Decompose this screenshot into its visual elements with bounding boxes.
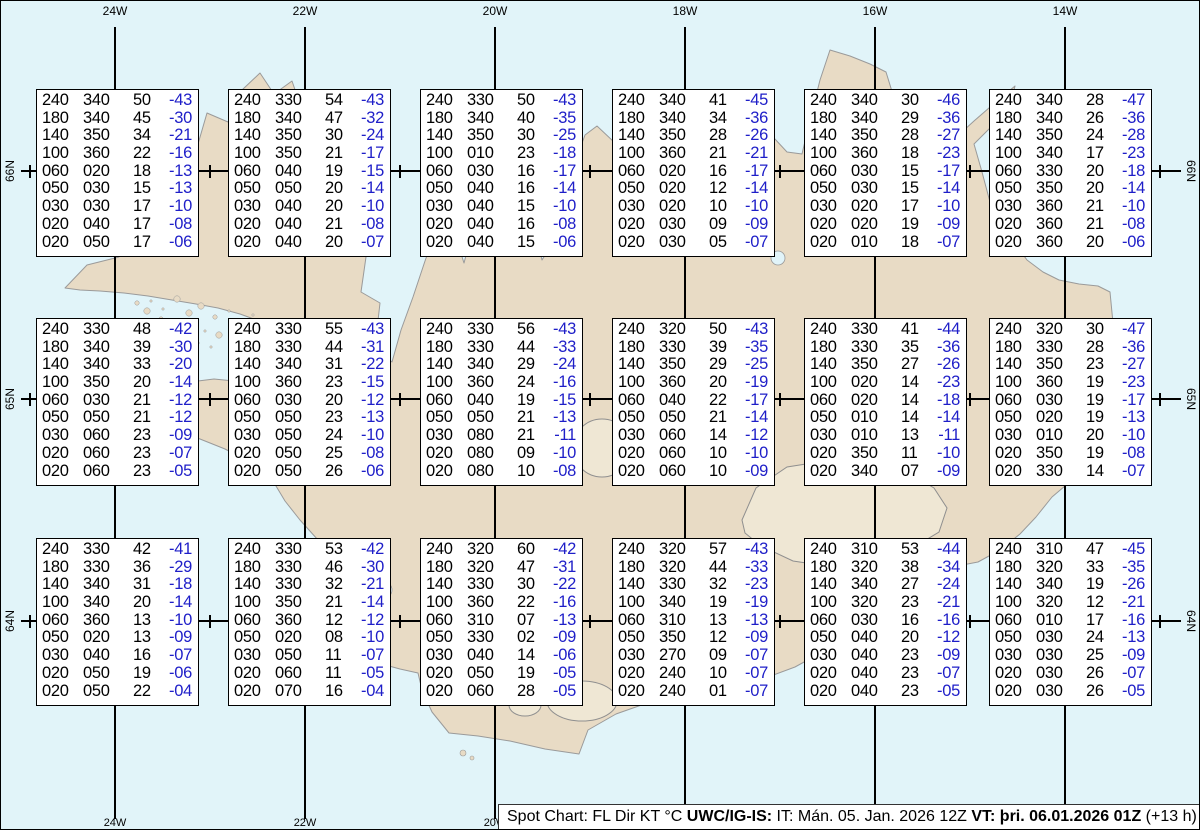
meridian-label-top: 18W bbox=[673, 4, 698, 18]
temp-value: -10 bbox=[1122, 427, 1147, 445]
kt-value: 23 bbox=[133, 463, 169, 481]
temp-value: -13 bbox=[169, 163, 194, 181]
forecast-row: 24033050-43 bbox=[426, 92, 578, 110]
kt-value: 02 bbox=[517, 629, 553, 647]
fl-value: 030 bbox=[42, 198, 83, 216]
fl-value: 020 bbox=[618, 234, 659, 252]
temp-value: -10 bbox=[745, 198, 770, 216]
fl-value: 030 bbox=[426, 427, 467, 445]
fl-value: 020 bbox=[618, 463, 659, 481]
graticule-cross bbox=[1159, 615, 1161, 628]
dir-value: 330 bbox=[659, 576, 709, 594]
dir-value: 360 bbox=[1036, 374, 1086, 392]
forecast-row: 02004023-07 bbox=[810, 665, 962, 683]
meridian-label-bottom: 22W bbox=[294, 817, 317, 829]
fl-value: 020 bbox=[234, 445, 275, 463]
forecast-row: 05033002-09 bbox=[426, 629, 578, 647]
forecast-row: 06002016-17 bbox=[618, 163, 770, 181]
temp-value: -08 bbox=[1122, 216, 1147, 234]
dir-value: 010 bbox=[1036, 427, 1086, 445]
forecast-row: 06004019-15 bbox=[234, 163, 386, 181]
kt-value: 47 bbox=[517, 559, 553, 577]
temp-value: -19 bbox=[745, 594, 770, 612]
kt-value: 21 bbox=[709, 145, 745, 163]
forecast-row: 10036023-15 bbox=[234, 374, 386, 392]
temp-value: -34 bbox=[937, 559, 962, 577]
temp-value: -17 bbox=[745, 392, 770, 410]
temp-value: -08 bbox=[169, 216, 194, 234]
dir-value: 030 bbox=[83, 392, 133, 410]
kt-value: 16 bbox=[325, 683, 361, 701]
fl-value: 240 bbox=[995, 92, 1036, 110]
forecast-row: 14035030-24 bbox=[234, 127, 386, 145]
temp-value: -06 bbox=[169, 234, 194, 252]
kt-value: 22 bbox=[133, 145, 169, 163]
forecast-row: 06036012-12 bbox=[234, 612, 386, 630]
kt-value: 24 bbox=[325, 427, 361, 445]
kt-value: 25 bbox=[325, 445, 361, 463]
forecast-row: 02024010-07 bbox=[618, 665, 770, 683]
dir-value: 030 bbox=[1036, 683, 1086, 701]
forecast-row: 18034026-36 bbox=[995, 110, 1147, 128]
islet bbox=[162, 308, 164, 310]
temp-value: -31 bbox=[361, 339, 386, 357]
fl-value: 020 bbox=[810, 683, 851, 701]
forecast-row: 06004019-15 bbox=[426, 392, 578, 410]
kt-value: 55 bbox=[325, 321, 361, 339]
kt-value: 01 bbox=[709, 683, 745, 701]
temp-value: -06 bbox=[361, 463, 386, 481]
kt-value: 18 bbox=[901, 145, 937, 163]
dir-value: 360 bbox=[1036, 198, 1086, 216]
fl-value: 180 bbox=[42, 339, 83, 357]
forecast-row: 18033046-30 bbox=[234, 559, 386, 577]
forecast-row: 10001023-18 bbox=[426, 145, 578, 163]
fl-value: 180 bbox=[426, 559, 467, 577]
forecast-row: 05005021-12 bbox=[42, 409, 194, 427]
info-bar-bold-segment: UWC/IG-IS: bbox=[687, 808, 772, 825]
spot-forecast-box: 24033054-4318034047-3214035030-241003502… bbox=[228, 89, 391, 257]
dir-value: 350 bbox=[659, 356, 709, 374]
dir-value: 350 bbox=[1036, 356, 1086, 374]
kt-value: 34 bbox=[709, 110, 745, 128]
kt-value: 22 bbox=[517, 594, 553, 612]
forecast-row: 03002010-10 bbox=[618, 198, 770, 216]
fl-value: 100 bbox=[995, 594, 1036, 612]
fl-value: 100 bbox=[234, 145, 275, 163]
forecast-row: 05004016-14 bbox=[426, 180, 578, 198]
fl-value: 180 bbox=[42, 110, 83, 128]
kt-value: 18 bbox=[901, 234, 937, 252]
kt-value: 23 bbox=[901, 647, 937, 665]
dir-value: 010 bbox=[851, 234, 901, 252]
islet bbox=[228, 310, 230, 312]
forecast-row: 02005017-06 bbox=[42, 234, 194, 252]
islet bbox=[174, 296, 180, 302]
info-bar-segment: Spot Chart: FL Dir KT °C bbox=[507, 808, 687, 825]
fl-value: 240 bbox=[995, 541, 1036, 559]
dir-value: 310 bbox=[851, 541, 901, 559]
fl-value: 240 bbox=[426, 92, 467, 110]
graticule-cross bbox=[399, 393, 401, 406]
temp-value: -08 bbox=[553, 463, 578, 481]
kt-value: 12 bbox=[709, 180, 745, 198]
fl-value: 140 bbox=[426, 576, 467, 594]
temp-value: -36 bbox=[937, 110, 962, 128]
dir-value: 340 bbox=[851, 576, 901, 594]
temp-value: -33 bbox=[553, 339, 578, 357]
graticule-cross bbox=[589, 615, 591, 628]
dir-value: 020 bbox=[1036, 409, 1086, 427]
temp-value: -10 bbox=[361, 198, 386, 216]
dir-value: 070 bbox=[275, 683, 325, 701]
temp-value: -36 bbox=[1122, 339, 1147, 357]
kt-value: 27 bbox=[901, 356, 937, 374]
forecast-row: 02008009-10 bbox=[426, 445, 578, 463]
graticule-cross bbox=[779, 165, 781, 178]
fl-value: 100 bbox=[426, 145, 467, 163]
dir-value: 320 bbox=[1036, 321, 1086, 339]
forecast-row: 05003015-14 bbox=[810, 180, 962, 198]
dir-value: 040 bbox=[851, 665, 901, 683]
dir-value: 020 bbox=[83, 629, 133, 647]
temp-value: -10 bbox=[553, 445, 578, 463]
forecast-row: 24033055-43 bbox=[234, 321, 386, 339]
forecast-row: 03006023-09 bbox=[42, 427, 194, 445]
kt-value: 10 bbox=[709, 445, 745, 463]
fl-value: 180 bbox=[426, 110, 467, 128]
fl-value: 060 bbox=[995, 392, 1036, 410]
dir-value: 040 bbox=[851, 683, 901, 701]
dir-value: 030 bbox=[659, 216, 709, 234]
dir-value: 020 bbox=[659, 180, 709, 198]
forecast-row: 24034041-45 bbox=[618, 92, 770, 110]
fl-value: 180 bbox=[810, 559, 851, 577]
fl-value: 140 bbox=[618, 576, 659, 594]
kt-value: 20 bbox=[1086, 427, 1122, 445]
temp-value: -07 bbox=[169, 445, 194, 463]
forecast-row: 24034028-47 bbox=[995, 92, 1147, 110]
kt-value: 16 bbox=[517, 180, 553, 198]
kt-value: 13 bbox=[133, 612, 169, 630]
forecast-row: 14034027-24 bbox=[810, 576, 962, 594]
dir-value: 020 bbox=[851, 374, 901, 392]
temp-value: -12 bbox=[361, 392, 386, 410]
forecast-row: 24033041-44 bbox=[810, 321, 962, 339]
kt-value: 45 bbox=[133, 110, 169, 128]
forecast-row: 02003005-07 bbox=[618, 234, 770, 252]
kt-value: 27 bbox=[901, 576, 937, 594]
dir-value: 050 bbox=[275, 647, 325, 665]
graticule-cross bbox=[29, 393, 31, 406]
fl-value: 180 bbox=[234, 339, 275, 357]
temp-value: -07 bbox=[745, 647, 770, 665]
kt-value: 20 bbox=[133, 594, 169, 612]
forecast-row: 06033020-18 bbox=[995, 163, 1147, 181]
kt-value: 50 bbox=[709, 321, 745, 339]
kt-value: 29 bbox=[517, 356, 553, 374]
temp-value: -13 bbox=[553, 612, 578, 630]
info-bar-segment: IT: Mán. 05. Jan. 2026 12Z bbox=[772, 808, 971, 825]
forecast-row: 10035020-14 bbox=[42, 374, 194, 392]
fl-value: 180 bbox=[234, 110, 275, 128]
dir-value: 060 bbox=[659, 427, 709, 445]
dir-value: 320 bbox=[659, 541, 709, 559]
fl-value: 240 bbox=[810, 92, 851, 110]
dir-value: 330 bbox=[467, 92, 517, 110]
forecast-row: 10032023-21 bbox=[810, 594, 962, 612]
dir-value: 320 bbox=[851, 559, 901, 577]
forecast-row: 05002012-14 bbox=[618, 180, 770, 198]
kt-value: 23 bbox=[133, 445, 169, 463]
spot-forecast-box: 24034030-4618034029-3614035028-271003601… bbox=[804, 89, 967, 257]
kt-value: 11 bbox=[325, 647, 361, 665]
temp-value: -17 bbox=[553, 163, 578, 181]
kt-value: 53 bbox=[901, 541, 937, 559]
forecast-row: 10035021-14 bbox=[234, 594, 386, 612]
dir-value: 350 bbox=[275, 127, 325, 145]
kt-value: 30 bbox=[901, 92, 937, 110]
forecast-row: 24032030-47 bbox=[995, 321, 1147, 339]
temp-value: -22 bbox=[361, 356, 386, 374]
islet bbox=[210, 346, 212, 348]
island-vestmannaeyjar bbox=[470, 756, 474, 760]
kt-value: 15 bbox=[133, 180, 169, 198]
temp-value: -23 bbox=[745, 576, 770, 594]
fl-value: 180 bbox=[810, 110, 851, 128]
spot-forecast-box: 24033048-4218034039-3014034033-201003502… bbox=[36, 318, 199, 486]
fl-value: 060 bbox=[995, 612, 1036, 630]
forecast-row: 02007016-04 bbox=[234, 683, 386, 701]
temp-value: -47 bbox=[1122, 321, 1147, 339]
dir-value: 340 bbox=[659, 110, 709, 128]
fl-value: 060 bbox=[618, 163, 659, 181]
temp-value: -13 bbox=[169, 180, 194, 198]
forecast-row: 18034029-36 bbox=[810, 110, 962, 128]
forecast-row: 06036013-10 bbox=[42, 612, 194, 630]
dir-value: 360 bbox=[1036, 234, 1086, 252]
fl-value: 020 bbox=[234, 216, 275, 234]
fl-value: 140 bbox=[234, 127, 275, 145]
fl-value: 020 bbox=[618, 445, 659, 463]
temp-value: -36 bbox=[1122, 110, 1147, 128]
dir-value: 040 bbox=[467, 180, 517, 198]
kt-value: 23 bbox=[901, 683, 937, 701]
fl-value: 240 bbox=[42, 541, 83, 559]
spot-forecast-box: 24033042-4118033036-2914034031-181003402… bbox=[36, 538, 199, 706]
temp-value: -18 bbox=[1122, 163, 1147, 181]
kt-value: 24 bbox=[1086, 127, 1122, 145]
temp-value: -05 bbox=[937, 683, 962, 701]
fl-value: 050 bbox=[618, 180, 659, 198]
temp-value: -30 bbox=[169, 110, 194, 128]
forecast-row: 02036021-08 bbox=[995, 216, 1147, 234]
forecast-row: 06003016-17 bbox=[426, 163, 578, 181]
fl-value: 020 bbox=[995, 234, 1036, 252]
kt-value: 44 bbox=[709, 559, 745, 577]
fl-value: 020 bbox=[42, 216, 83, 234]
dir-value: 330 bbox=[467, 339, 517, 357]
forecast-row: 18033035-36 bbox=[810, 339, 962, 357]
fl-value: 020 bbox=[426, 445, 467, 463]
temp-value: -08 bbox=[553, 216, 578, 234]
fl-value: 050 bbox=[234, 180, 275, 198]
fl-value: 050 bbox=[810, 629, 851, 647]
fl-value: 060 bbox=[42, 392, 83, 410]
forecast-row: 03004020-10 bbox=[234, 198, 386, 216]
temp-value: -06 bbox=[169, 665, 194, 683]
kt-value: 23 bbox=[133, 427, 169, 445]
kt-value: 21 bbox=[709, 409, 745, 427]
kt-value: 34 bbox=[133, 127, 169, 145]
kt-value: 47 bbox=[325, 110, 361, 128]
forecast-row: 14034033-20 bbox=[42, 356, 194, 374]
fl-value: 060 bbox=[426, 612, 467, 630]
kt-value: 07 bbox=[517, 612, 553, 630]
temp-value: -13 bbox=[745, 612, 770, 630]
forecast-row: 18033036-29 bbox=[42, 559, 194, 577]
temp-value: -46 bbox=[937, 92, 962, 110]
temp-value: -10 bbox=[361, 629, 386, 647]
forecast-row: 24033042-41 bbox=[42, 541, 194, 559]
fl-value: 020 bbox=[810, 234, 851, 252]
islet bbox=[198, 303, 204, 309]
fl-value: 060 bbox=[426, 392, 467, 410]
forecast-row: 06003015-17 bbox=[810, 163, 962, 181]
temp-value: -36 bbox=[745, 110, 770, 128]
fl-value: 050 bbox=[810, 409, 851, 427]
fl-value: 020 bbox=[995, 445, 1036, 463]
kt-value: 50 bbox=[133, 92, 169, 110]
fl-value: 100 bbox=[42, 145, 83, 163]
dir-value: 330 bbox=[275, 92, 325, 110]
fl-value: 050 bbox=[234, 409, 275, 427]
meridian-label-top: 14W bbox=[1053, 4, 1078, 18]
temp-value: -24 bbox=[937, 576, 962, 594]
fl-value: 060 bbox=[234, 163, 275, 181]
forecast-row: 24034050-43 bbox=[42, 92, 194, 110]
fl-value: 030 bbox=[234, 647, 275, 665]
temp-value: -16 bbox=[553, 374, 578, 392]
dir-value: 050 bbox=[83, 234, 133, 252]
fl-value: 020 bbox=[234, 665, 275, 683]
temp-value: -06 bbox=[553, 234, 578, 252]
dir-value: 040 bbox=[467, 216, 517, 234]
graticule-cross bbox=[1159, 165, 1161, 178]
kt-value: 20 bbox=[325, 234, 361, 252]
dir-value: 360 bbox=[467, 594, 517, 612]
dir-value: 340 bbox=[1036, 92, 1086, 110]
parallel-label-left: 64N bbox=[3, 610, 17, 632]
temp-value: -10 bbox=[937, 198, 962, 216]
kt-value: 35 bbox=[901, 339, 937, 357]
forecast-row: 06001017-16 bbox=[995, 612, 1147, 630]
dir-value: 320 bbox=[1036, 559, 1086, 577]
dir-value: 330 bbox=[1036, 339, 1086, 357]
kt-value: 07 bbox=[901, 463, 937, 481]
forecast-row: 14033030-22 bbox=[426, 576, 578, 594]
temp-value: -14 bbox=[745, 409, 770, 427]
temp-value: -18 bbox=[169, 576, 194, 594]
forecast-row: 02008010-08 bbox=[426, 463, 578, 481]
dir-value: 340 bbox=[851, 92, 901, 110]
temp-value: -08 bbox=[361, 445, 386, 463]
fl-value: 020 bbox=[995, 665, 1036, 683]
forecast-row: 24031053-44 bbox=[810, 541, 962, 559]
dir-value: 350 bbox=[83, 374, 133, 392]
kt-value: 09 bbox=[517, 445, 553, 463]
fl-value: 240 bbox=[234, 321, 275, 339]
island-vestmannaeyjar bbox=[460, 750, 466, 756]
forecast-row: 18032038-34 bbox=[810, 559, 962, 577]
temp-value: -10 bbox=[1122, 198, 1147, 216]
kt-value: 23 bbox=[901, 594, 937, 612]
kt-value: 11 bbox=[901, 445, 937, 463]
forecast-row: 02006011-05 bbox=[234, 665, 386, 683]
fl-value: 240 bbox=[426, 541, 467, 559]
kt-value: 41 bbox=[901, 321, 937, 339]
dir-value: 040 bbox=[659, 392, 709, 410]
temp-value: -05 bbox=[361, 665, 386, 683]
forecast-row: 05005020-14 bbox=[234, 180, 386, 198]
spot-forecast-box: 24032057-4318032044-3314033032-231003401… bbox=[612, 538, 775, 706]
dir-value: 020 bbox=[659, 198, 709, 216]
fl-value: 020 bbox=[810, 216, 851, 234]
kt-value: 19 bbox=[709, 594, 745, 612]
parallel-label-right: 64N bbox=[1184, 610, 1198, 632]
temp-value: -07 bbox=[745, 234, 770, 252]
dir-value: 330 bbox=[1036, 163, 1086, 181]
temp-value: -27 bbox=[937, 127, 962, 145]
dir-value: 020 bbox=[851, 392, 901, 410]
dir-value: 310 bbox=[659, 612, 709, 630]
kt-value: 19 bbox=[325, 163, 361, 181]
temp-value: -31 bbox=[553, 559, 578, 577]
kt-value: 39 bbox=[709, 339, 745, 357]
graticule-cross bbox=[589, 165, 591, 178]
fl-value: 140 bbox=[995, 127, 1036, 145]
kt-value: 15 bbox=[517, 234, 553, 252]
dir-value: 050 bbox=[275, 180, 325, 198]
forecast-row: 05005021-14 bbox=[618, 409, 770, 427]
fl-value: 060 bbox=[618, 612, 659, 630]
fl-value: 020 bbox=[618, 216, 659, 234]
kt-value: 28 bbox=[1086, 92, 1122, 110]
temp-value: -26 bbox=[1122, 576, 1147, 594]
forecast-row: 03008021-11 bbox=[426, 427, 578, 445]
dir-value: 050 bbox=[83, 409, 133, 427]
forecast-row: 02005025-08 bbox=[234, 445, 386, 463]
spot-forecast-box: 24031047-4518032033-3514034019-261003201… bbox=[989, 538, 1152, 706]
temp-value: -09 bbox=[1122, 647, 1147, 665]
forecast-row: 14034029-24 bbox=[426, 356, 578, 374]
fl-value: 050 bbox=[618, 409, 659, 427]
parallel-label-left: 66N bbox=[3, 160, 17, 182]
temp-value: -13 bbox=[1122, 629, 1147, 647]
forecast-row: 02001018-07 bbox=[810, 234, 962, 252]
islet bbox=[150, 300, 152, 302]
meridian-label-top: 16W bbox=[863, 4, 888, 18]
forecast-row: 24033054-43 bbox=[234, 92, 386, 110]
dir-value: 340 bbox=[275, 356, 325, 374]
fl-value: 180 bbox=[426, 339, 467, 357]
meridian-label-top: 24W bbox=[103, 4, 128, 18]
forecast-row: 14034031-18 bbox=[42, 576, 194, 594]
kt-value: 14 bbox=[1086, 463, 1122, 481]
fl-value: 060 bbox=[995, 163, 1036, 181]
temp-value: -43 bbox=[361, 321, 386, 339]
kt-value: 28 bbox=[709, 127, 745, 145]
